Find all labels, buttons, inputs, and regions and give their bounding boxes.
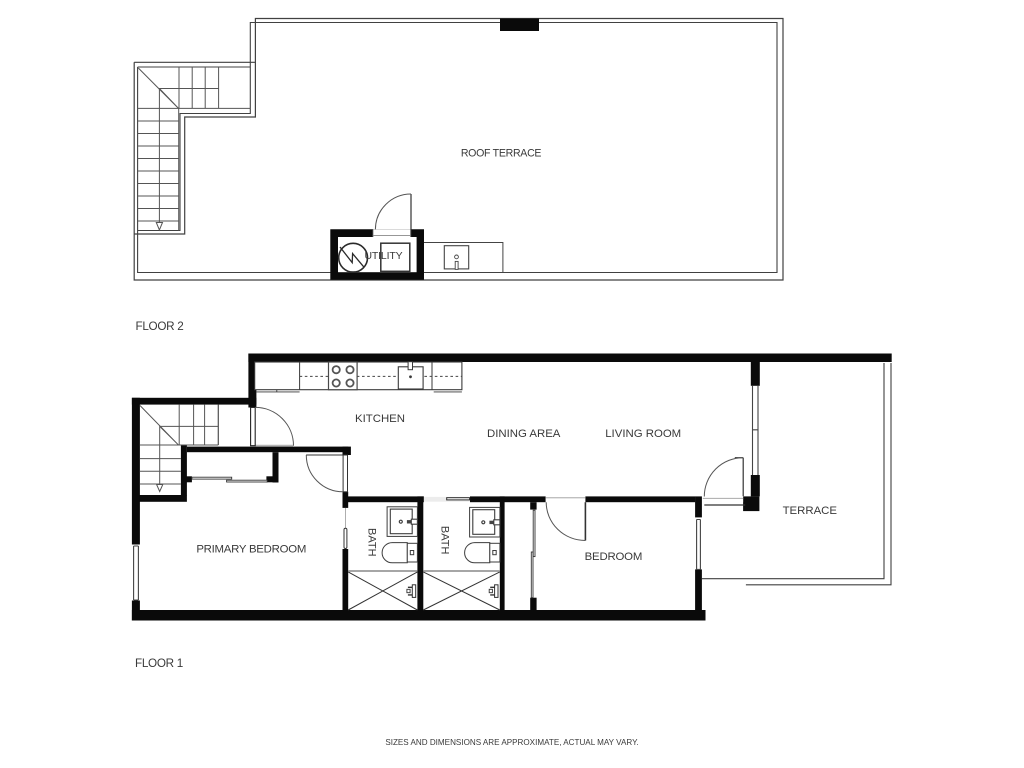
svg-text:TERRACE: TERRACE — [783, 505, 838, 517]
svg-text:KITCHEN: KITCHEN — [355, 413, 405, 425]
svg-text:FLOOR 1: FLOOR 1 — [135, 657, 183, 670]
svg-text:BATH: BATH — [438, 526, 450, 555]
svg-text:BEDROOM: BEDROOM — [585, 551, 642, 563]
svg-text:PRIMARY BEDROOM: PRIMARY BEDROOM — [196, 544, 306, 556]
svg-text:LIVING ROOM: LIVING ROOM — [605, 428, 681, 440]
svg-text:UTILITY: UTILITY — [364, 250, 402, 262]
svg-text:SIZES AND DIMENSIONS ARE APPRO: SIZES AND DIMENSIONS ARE APPROXIMATE, AC… — [385, 738, 638, 747]
svg-text:ROOF TERRACE: ROOF TERRACE — [461, 147, 542, 159]
svg-text:FLOOR 2: FLOOR 2 — [136, 320, 184, 333]
svg-text:DINING AREA: DINING AREA — [487, 428, 561, 440]
svg-text:BATH: BATH — [365, 528, 377, 557]
